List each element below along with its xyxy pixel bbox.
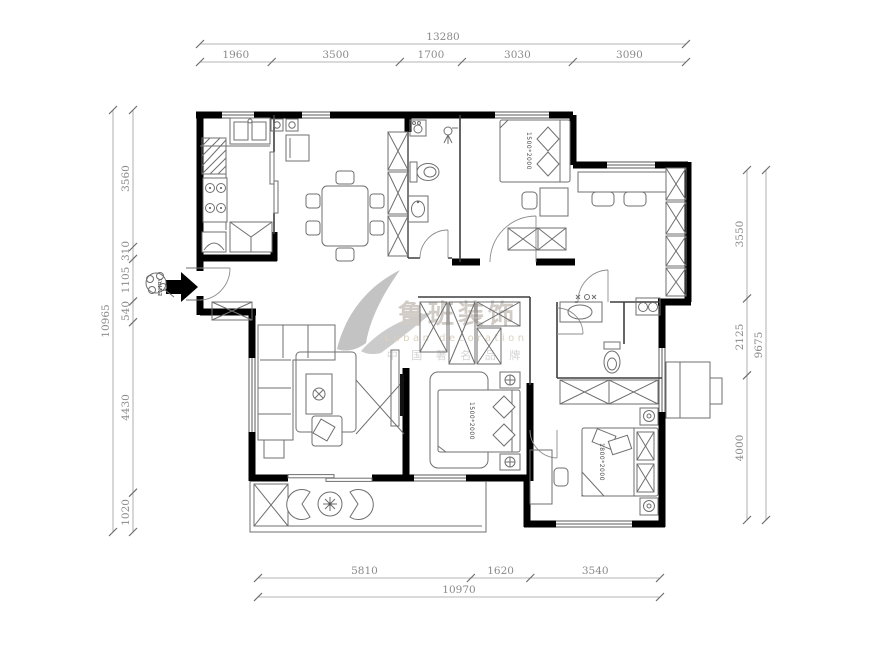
dim-left-total: 10965 <box>100 304 112 337</box>
dim-top-seg-4: 3030 <box>504 49 531 61</box>
dim-left-seg-4: 540 <box>120 301 132 321</box>
balcony-table <box>318 492 342 516</box>
dim-left-seg-1: 3560 <box>120 165 132 192</box>
dim-left-seg-2: 310 <box>120 241 132 261</box>
nightstand-corner-2 <box>640 498 658 515</box>
entry-label: ENTRY <box>158 277 164 295</box>
dim-top-seg-2: 3500 <box>322 49 349 61</box>
floor-plan-page: 鲁班装饰 Luban decoration 中 国 著 名 品 牌 <box>0 0 870 649</box>
dim-bottom-total: 10970 <box>442 584 475 596</box>
watermark-brand-en: Luban decoration <box>384 333 527 344</box>
kitchen-stove <box>203 178 227 222</box>
dim-right-seg-3: 4000 <box>734 435 746 462</box>
dim-right-seg-2: 2125 <box>734 324 746 351</box>
lounge-chair <box>312 416 342 446</box>
dim-top-seg-3: 1700 <box>418 49 445 61</box>
dim-left-seg-6: 1020 <box>120 499 132 526</box>
nightstand-master-2 <box>500 454 520 470</box>
dim-right-seg-1: 3550 <box>734 221 746 248</box>
dim-top-seg-5: 3090 <box>616 49 643 61</box>
bed-label-top: 1500*2000 <box>525 132 532 170</box>
dim-left-seg-5: 4430 <box>120 394 132 421</box>
nightstand-master-1 <box>500 372 520 388</box>
dim-bottom-seg-1: 5810 <box>351 565 378 577</box>
floor-plan-svg: 鲁班装饰 Luban decoration 中 国 著 名 品 牌 <box>0 0 870 649</box>
dim-right-total: 9675 <box>753 332 765 359</box>
kitchen-sink <box>230 118 270 144</box>
nightstand-corner-1 <box>640 408 658 425</box>
dim-left-seg-3: 1105 <box>120 267 132 294</box>
bed-label-master: 1500*2000 <box>468 402 475 440</box>
study-chair-2 <box>624 192 646 206</box>
watermark-tagline: 中 国 著 名 品 牌 <box>387 348 525 362</box>
study-chair-1 <box>592 192 614 206</box>
dim-bottom-seg-2: 1620 <box>487 565 514 577</box>
dim-bottom-seg-3: 3540 <box>582 565 609 577</box>
bed-label-corner: 1800*2000 <box>598 443 605 481</box>
dim-top-total: 13280 <box>426 31 459 43</box>
coffee-table <box>306 374 332 414</box>
dim-top-seg-1: 1960 <box>222 49 249 61</box>
